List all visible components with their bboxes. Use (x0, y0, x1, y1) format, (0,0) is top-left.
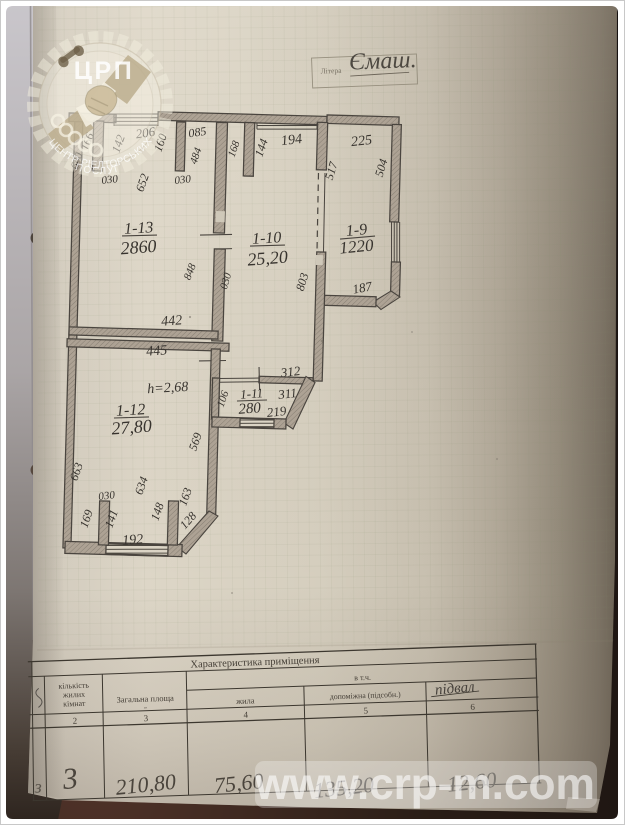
svg-text:Ємаш.: Ємаш. (348, 47, 416, 76)
svg-text:194: 194 (280, 132, 303, 149)
svg-text:442: 442 (161, 313, 183, 330)
svg-text:2860: 2860 (120, 236, 157, 259)
svg-text:225: 225 (350, 133, 373, 150)
svg-text:з: з (33, 776, 42, 796)
svg-text:6: 6 (470, 702, 475, 712)
svg-text:030: 030 (98, 489, 116, 503)
svg-text:h=2,68: h=2,68 (147, 380, 189, 397)
svg-text:445: 445 (146, 343, 168, 360)
svg-text:www.crp-m.com: www.crp-m.com (254, 760, 594, 809)
svg-text:жила: жила (235, 695, 255, 706)
svg-text:312: 312 (279, 363, 302, 380)
svg-text:311: 311 (276, 385, 297, 402)
svg-text:219: 219 (266, 403, 288, 420)
svg-text:280: 280 (238, 400, 262, 418)
svg-text:1220: 1220 (339, 235, 375, 257)
svg-text:4: 4 (243, 710, 248, 720)
svg-text:2: 2 (72, 716, 77, 726)
svg-text:192: 192 (122, 532, 144, 549)
svg-text:27,80: 27,80 (111, 416, 153, 439)
svg-text:5: 5 (363, 705, 368, 715)
svg-text:кімнат: кімнат (63, 699, 86, 709)
svg-text:030: 030 (174, 173, 192, 187)
svg-text:Літера: Літера (320, 66, 342, 76)
svg-text:25,20: 25,20 (247, 247, 289, 270)
svg-text:3: 3 (143, 713, 148, 723)
svg-text:085: 085 (187, 124, 207, 140)
svg-text:в т.ч.: в т.ч. (354, 673, 371, 683)
svg-text:ЦРП: ЦРП (74, 57, 134, 85)
